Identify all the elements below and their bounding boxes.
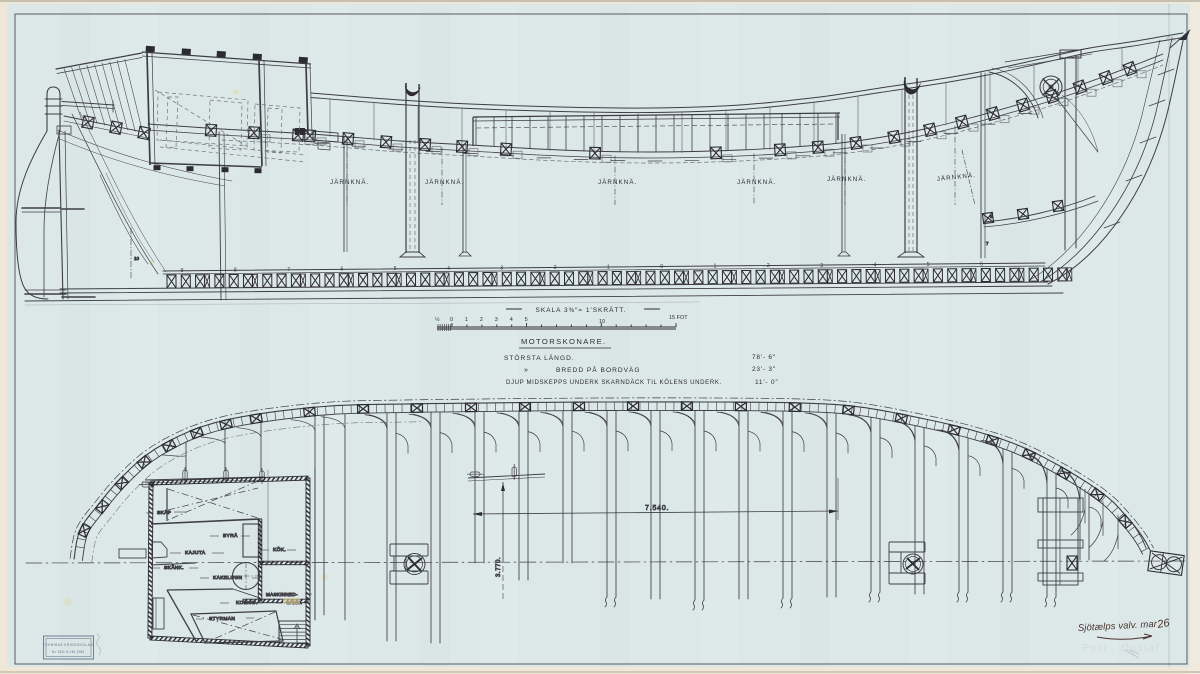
svg-text:Post · Gustaf: Post · Gustaf <box>1082 643 1160 654</box>
svg-text:1: 1 <box>465 317 468 323</box>
svg-text:4: 4 <box>447 266 450 272</box>
svg-text:4: 4 <box>874 262 877 268</box>
svg-text:1: 1 <box>714 264 717 270</box>
svg-text:3: 3 <box>500 265 503 271</box>
svg-text:3: 3 <box>820 263 823 269</box>
svg-text:5: 5 <box>927 262 930 268</box>
svg-text:2: 2 <box>554 265 557 271</box>
svg-text:4: 4 <box>510 317 513 323</box>
svg-text:6: 6 <box>980 262 983 268</box>
svg-text:6: 6 <box>341 267 344 273</box>
svg-text:JÄRNKNÄ.: JÄRNKNÄ. <box>425 179 464 186</box>
svg-text:JÄRNKNÄ.: JÄRNKNÄ. <box>330 179 369 186</box>
svg-text:KAKELUGN: KAKELUGN <box>213 575 242 581</box>
svg-text:N:r 1931 H.J.M. 1934: N:r 1931 H.J.M. 1934 <box>52 650 84 654</box>
svg-text:3.770.: 3.770. <box>496 557 502 577</box>
svg-text:7: 7 <box>287 267 290 273</box>
svg-text:11′- 0″: 11′- 0″ <box>755 379 778 386</box>
svg-text:1: 1 <box>607 265 610 271</box>
svg-text:TEKNISKA KRIGSSKOLAN: TEKNISKA KRIGSSKOLAN <box>43 643 93 647</box>
svg-text:15 FOT: 15 FOT <box>669 315 688 321</box>
svg-text:STÖRSTA LÄNGD.: STÖRSTA LÄNGD. <box>504 354 575 362</box>
svg-text:2: 2 <box>480 317 483 323</box>
svg-text:10: 10 <box>599 319 605 325</box>
svg-text:BREDD PÅ BORDVÄG: BREDD PÅ BORDVÄG <box>556 365 641 374</box>
svg-text:SKÄNK.: SKÄNK. <box>164 564 184 571</box>
svg-text:DJUP MIDSKEPPS UNDERK SKARNDÄC: DJUP MIDSKEPPS UNDERK SKARNDÄCK TIL KÖLE… <box>506 379 722 386</box>
svg-text:STYRMAN: STYRMAN <box>209 616 235 622</box>
svg-text:SKÅP: SKÅP <box>157 509 171 516</box>
svg-text:½: ½ <box>435 316 440 323</box>
svg-text:5: 5 <box>525 317 528 323</box>
svg-text:KÖK.: KÖK. <box>273 546 286 553</box>
svg-text:7.540.: 7.540. <box>645 505 669 512</box>
svg-text:MASKINNED-: MASKINNED- <box>266 592 298 597</box>
svg-text:JÄRNKNÄ.: JÄRNKNÄ. <box>598 179 637 186</box>
svg-text:JÄRNKNÄ.: JÄRNKNÄ. <box>827 176 866 183</box>
svg-text:78′- 6″: 78′- 6″ <box>752 354 776 361</box>
svg-text:10: 10 <box>134 256 140 261</box>
svg-text:0: 0 <box>450 317 453 323</box>
svg-text:MOTORSKONARE.: MOTORSKONARE. <box>521 337 607 346</box>
svg-text:8: 8 <box>234 268 237 274</box>
svg-text:5: 5 <box>394 266 397 272</box>
svg-text:0: 0 <box>660 264 663 270</box>
svg-text:KAJUTA: KAJUTA <box>185 550 206 556</box>
svg-text:BYRÅ: BYRÅ <box>223 532 238 539</box>
svg-text:3: 3 <box>495 317 498 323</box>
svg-text:JÄRNKNÄ.: JÄRNKNÄ. <box>737 179 776 186</box>
svg-text:KOMOD.: KOMOD. <box>236 600 258 606</box>
svg-text:SKALA 3⅜″= 1′SKRÄTT.: SKALA 3⅜″= 1′SKRÄTT. <box>536 306 627 314</box>
svg-text:9: 9 <box>181 268 184 274</box>
svg-text:»: » <box>524 367 529 374</box>
svg-text:23′- 3″: 23′- 3″ <box>752 366 776 373</box>
svg-text:2: 2 <box>767 263 770 269</box>
